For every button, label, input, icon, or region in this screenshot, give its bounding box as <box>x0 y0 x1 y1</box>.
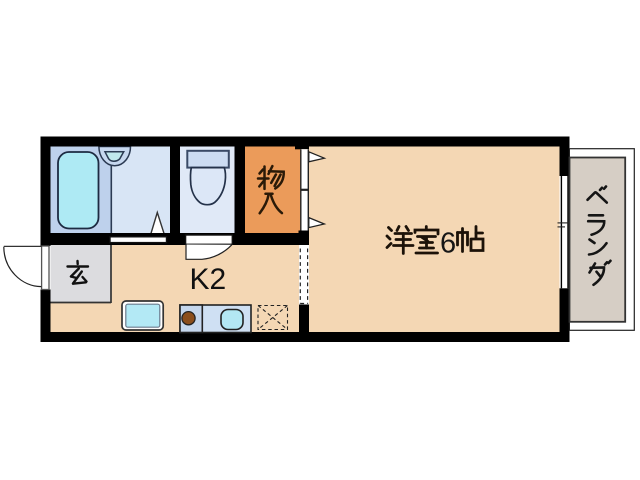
svg-text:K2: K2 <box>190 263 227 296</box>
svg-text:6: 6 <box>440 228 456 260</box>
